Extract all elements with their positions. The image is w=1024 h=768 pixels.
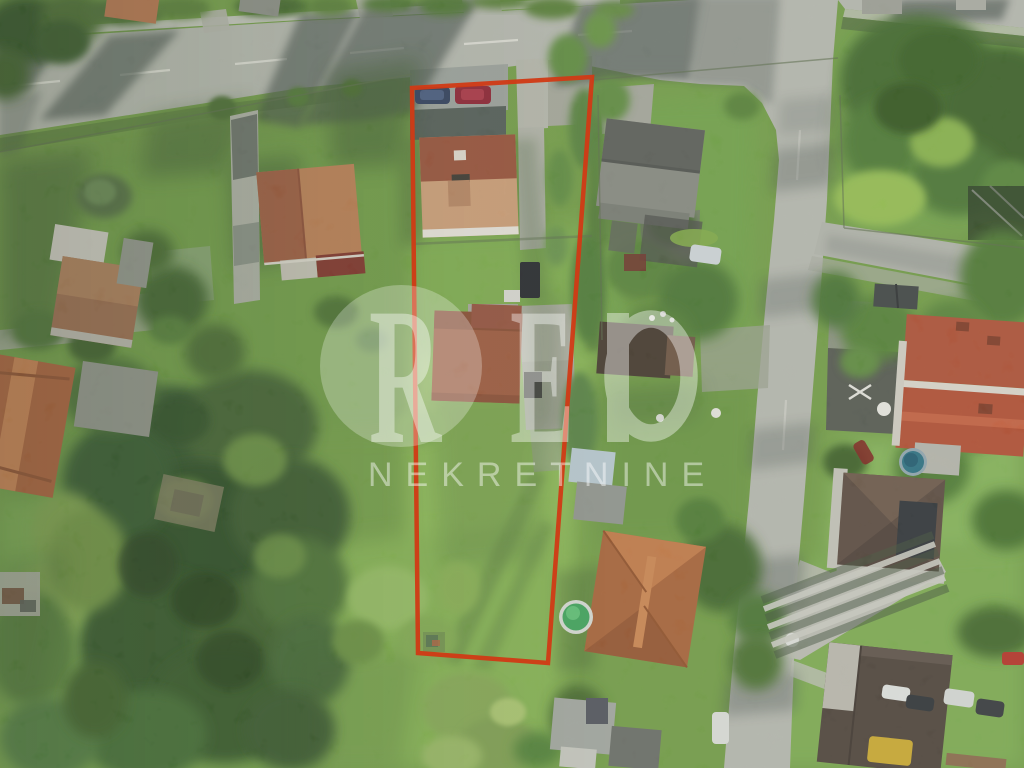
svg-text:NEKRETNINE: NEKRETNINE [368,456,717,494]
svg-text:R: R [369,267,442,485]
svg-text:E: E [510,268,574,485]
